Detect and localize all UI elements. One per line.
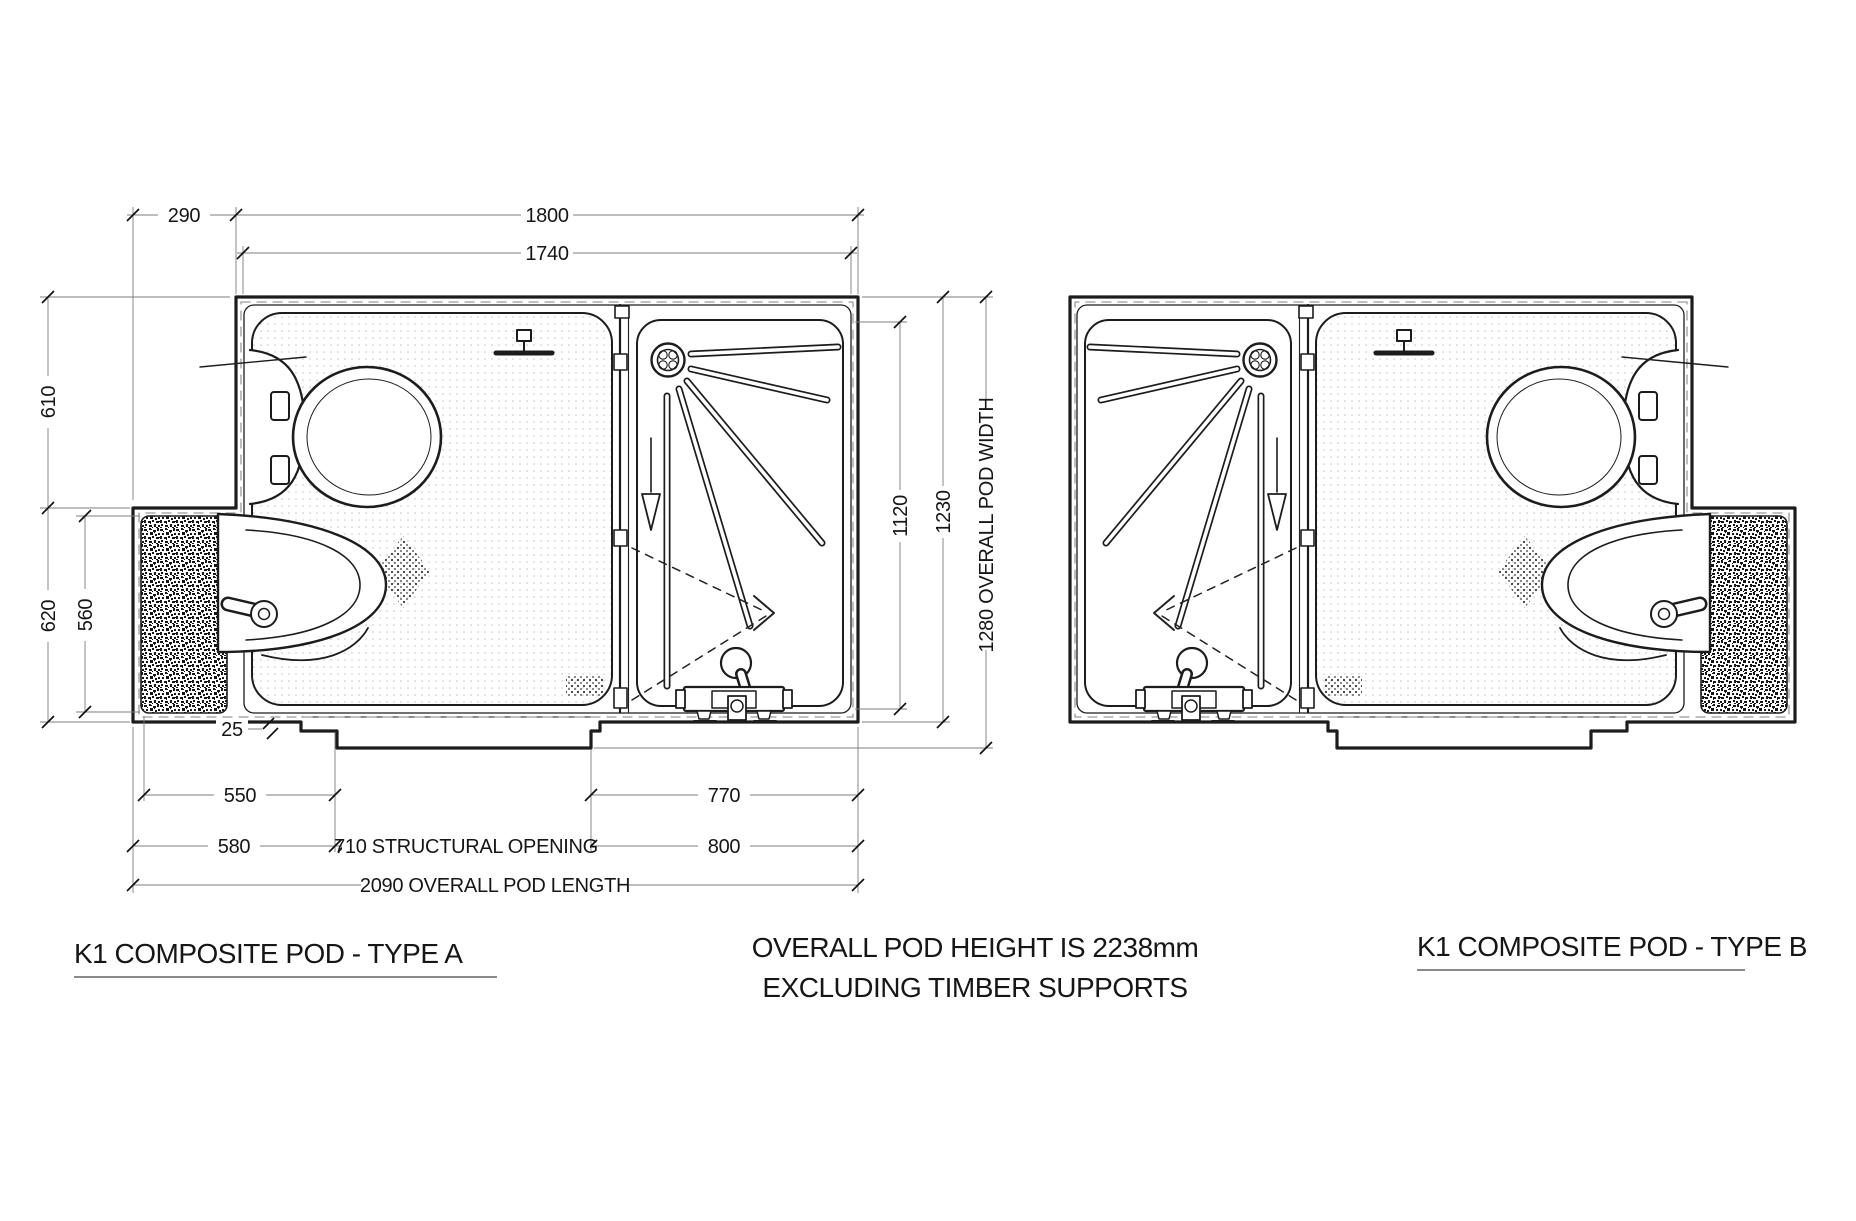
- pod-height-note-line2: EXCLUDING TIMBER SUPPORTS: [762, 972, 1187, 1003]
- type-a-pod-plan: [133, 297, 858, 748]
- dim-1280-overall-label: 1280 OVERALL POD WIDTH: [976, 398, 998, 653]
- dim-25-label: 25: [221, 719, 243, 741]
- dim-1740-label: 1740: [525, 243, 568, 265]
- dim-1120-label: 1120: [890, 495, 912, 537]
- dim-770-label: 770: [708, 785, 741, 807]
- dim-2090-overall-label: 2090 OVERALL POD LENGTH: [360, 875, 630, 897]
- titles: K1 COMPOSITE POD - TYPE A OVERALL POD HE…: [74, 931, 1807, 1003]
- type-b-pod-plan: [1070, 297, 1795, 748]
- drawing-sheet: 290 1800 1740 610 620 560 25 550 770 580…: [0, 0, 1856, 1221]
- dim-800-label: 800: [708, 836, 741, 858]
- dim-580-label: 580: [218, 836, 251, 858]
- dim-560-label: 560: [75, 599, 97, 632]
- dim-620-label: 620: [38, 600, 60, 633]
- pod-height-note-line1: OVERALL POD HEIGHT IS 2238mm: [752, 932, 1199, 963]
- type-a-title: K1 COMPOSITE POD - TYPE A: [74, 938, 463, 969]
- plan-canvas: 290 1800 1740 610 620 560 25 550 770 580…: [0, 0, 1856, 1221]
- dim-290-label: 290: [168, 205, 201, 227]
- dim-1800-label: 1800: [525, 205, 568, 227]
- dim-710-opening-label: 710 STRUCTURAL OPENING: [334, 836, 598, 858]
- dim-1230-label: 1230: [933, 490, 955, 533]
- type-b-title: K1 COMPOSITE POD - TYPE B: [1417, 931, 1807, 962]
- dim-550-label: 550: [224, 785, 257, 807]
- dim-610-label: 610: [38, 386, 60, 419]
